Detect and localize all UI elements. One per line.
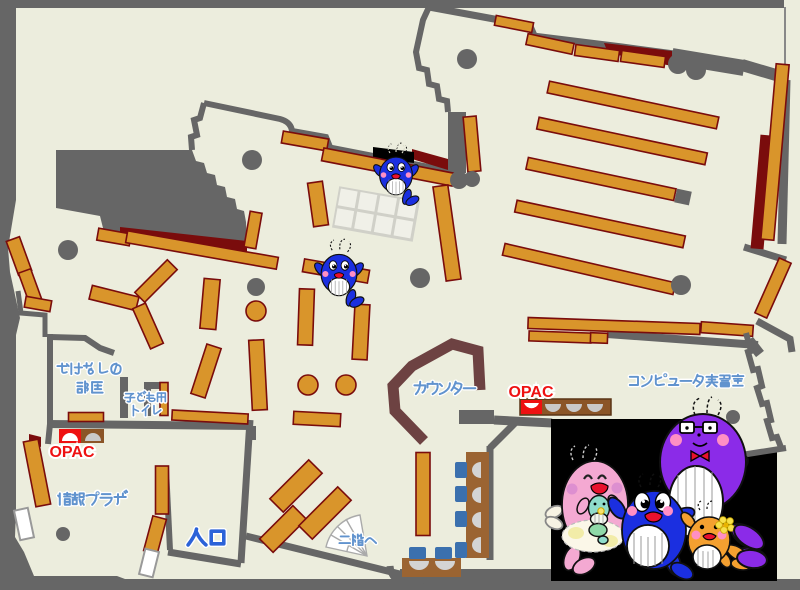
svg-text:OPAC: OPAC: [508, 384, 553, 401]
svg-text:OPAC: OPAC: [49, 444, 94, 461]
